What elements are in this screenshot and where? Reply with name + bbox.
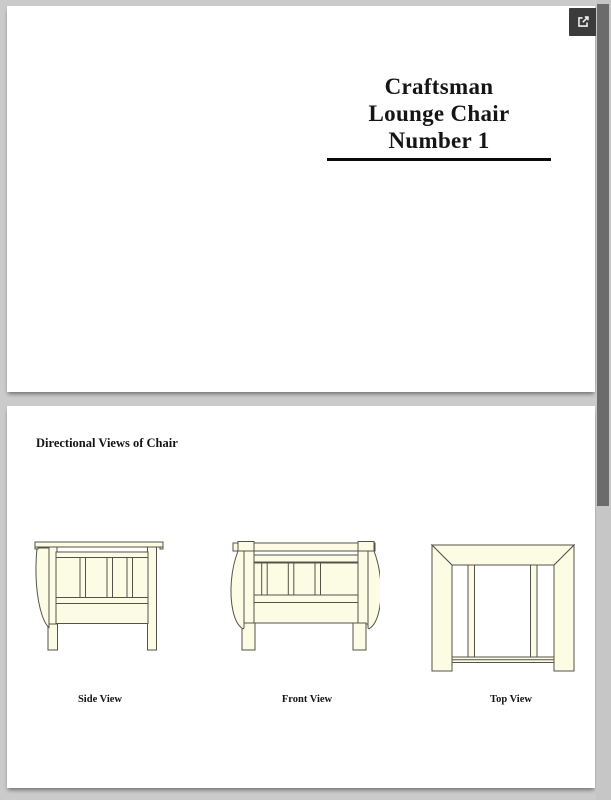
document-page-1: Craftsman Lounge Chair Number 1	[7, 6, 595, 392]
document-viewer: Craftsman Lounge Chair Number 1 Directio…	[0, 0, 611, 800]
side-view-label: Side View	[40, 694, 160, 705]
side-view-drawing	[30, 536, 170, 656]
page-title-line-2: Lounge Chair	[327, 100, 551, 127]
page-title: Craftsman Lounge Chair Number 1	[327, 73, 551, 154]
top-view-drawing	[428, 540, 578, 676]
open-in-new-button[interactable]	[569, 8, 597, 36]
page-title-line-3: Number 1	[327, 127, 551, 154]
front-view-label: Front View	[247, 694, 367, 705]
section-heading: Directional Views of Chair	[36, 437, 178, 450]
title-divider	[327, 158, 551, 161]
page-title-line-1: Craftsman	[327, 73, 551, 100]
open-in-new-icon	[574, 13, 592, 31]
scrollbar[interactable]	[596, 0, 611, 800]
front-view-drawing	[228, 536, 380, 656]
top-view-label: Top View	[451, 694, 571, 705]
scrollbar-thumb[interactable]	[597, 4, 609, 506]
